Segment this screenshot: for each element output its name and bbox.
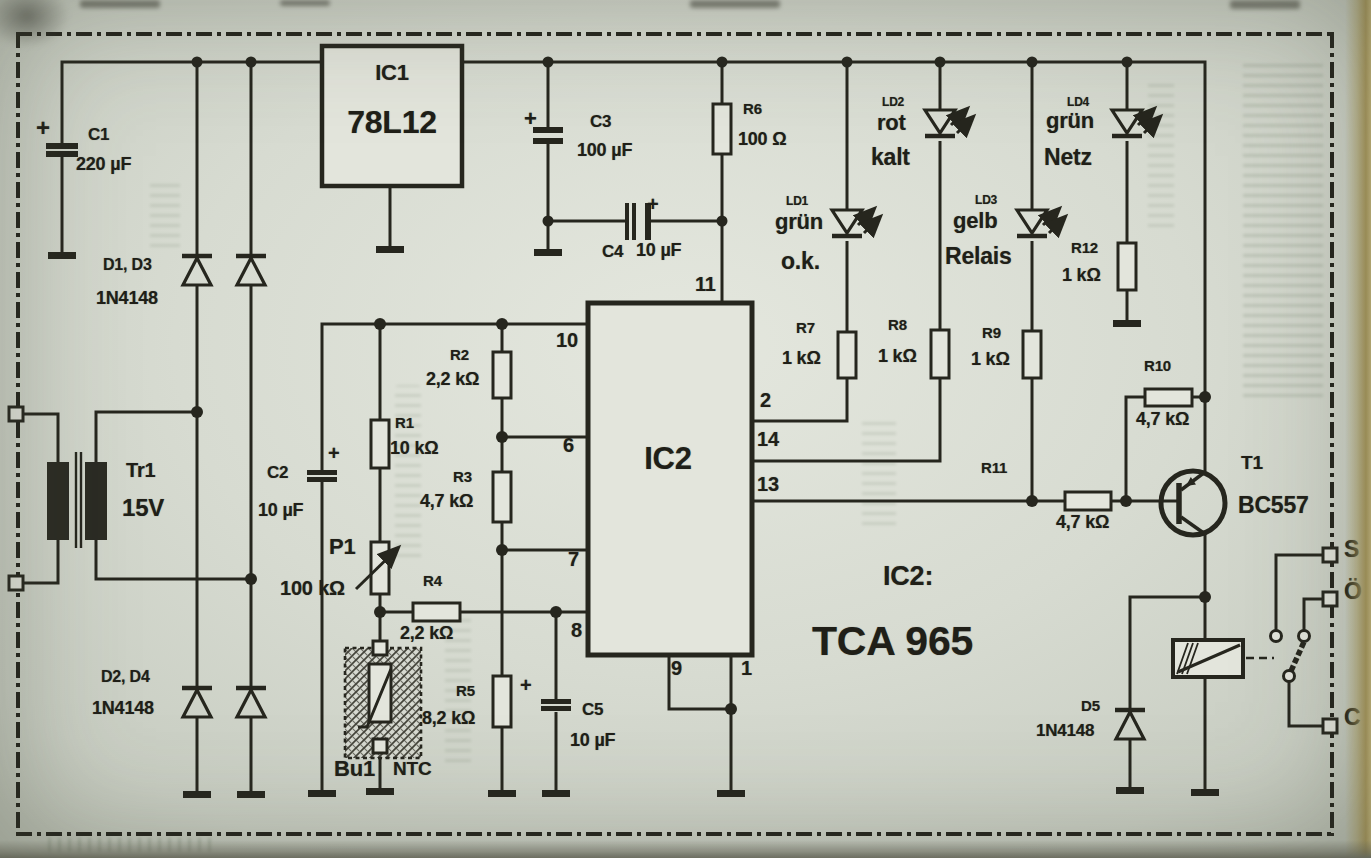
label-d1d3-value: 1N4148 — [96, 289, 158, 307]
label-r6-value: 100 Ω — [738, 130, 786, 148]
label-c4-plus: + — [647, 194, 658, 214]
label-r7-ref: R7 — [796, 320, 815, 335]
label-tr1-ref: Tr1 — [126, 460, 155, 480]
label-ld3-ref: LD3 — [975, 194, 997, 206]
label-c4-ref: C4 — [602, 243, 623, 260]
label-c1-value: 220 µF — [76, 155, 131, 173]
scanned-schematic-photo: +C1220 µFD1, D31N4148IC178L12+C3100 µF+C… — [0, 0, 1371, 858]
label-r4-ref: R4 — [423, 573, 442, 588]
label-r8-value: 1 kΩ — [878, 347, 917, 365]
label-pin-6: 6 — [563, 435, 574, 455]
label-pin-10: 10 — [556, 330, 578, 350]
label-r12-ref: R12 — [1071, 240, 1098, 255]
label-ic1-value: 78L12 — [347, 106, 437, 138]
label-r10-value: 4,7 kΩ — [1136, 410, 1189, 428]
label-ic2-note-label: IC2: — [883, 563, 933, 590]
label-ld2-color: rot — [877, 112, 906, 134]
label-d2d4-value: 1N4148 — [92, 699, 154, 717]
label-r4-value: 2,2 kΩ — [400, 624, 453, 642]
label-c5-plus: + — [520, 675, 531, 695]
label-p1-ref: P1 — [329, 536, 356, 558]
label-terminal-s: S — [1344, 538, 1359, 561]
label-ld2-ref: LD2 — [882, 96, 904, 108]
label-bu1-type: NTC — [393, 759, 431, 778]
label-ld4-ref: LD4 — [1067, 96, 1089, 108]
label-c4-value: 10 µF — [636, 241, 681, 259]
label-r8-ref: R8 — [888, 317, 907, 332]
label-c3-value: 100 µF — [577, 141, 632, 159]
label-pin-2: 2 — [760, 390, 771, 410]
label-d1d3-ref: D1, D3 — [103, 257, 152, 273]
label-c2-plus: + — [328, 443, 339, 463]
label-c5-value: 10 µF — [570, 731, 615, 749]
label-pin-11: 11 — [695, 274, 716, 294]
schematic-labels: +C1220 µFD1, D31N4148IC178L12+C3100 µF+C… — [0, 0, 1371, 858]
label-t1-ref: T1 — [1241, 453, 1263, 472]
label-r10-ref: R10 — [1144, 358, 1171, 373]
label-c5-ref: C5 — [582, 701, 603, 718]
label-pin-8: 8 — [571, 620, 582, 640]
label-r12-value: 1 kΩ — [1062, 266, 1101, 284]
label-d2d4-ref: D2, D4 — [101, 669, 150, 685]
label-pin-14: 14 — [757, 429, 779, 449]
label-d5-ref: D5 — [1081, 698, 1100, 713]
label-r11-ref: R11 — [981, 460, 1007, 475]
label-c1-ref: C1 — [88, 126, 109, 143]
label-c2-ref: C2 — [267, 464, 288, 481]
label-terminal-oe: Ö — [1344, 580, 1362, 603]
label-r9-value: 1 kΩ — [971, 350, 1010, 368]
label-ld3-function: Relais — [945, 245, 1012, 268]
label-r1-ref: R1 — [395, 415, 414, 430]
label-pin-1: 1 — [741, 658, 752, 678]
label-c1-plus: + — [36, 116, 50, 140]
label-c3-ref: C3 — [590, 113, 611, 130]
label-ic2-ref: IC2 — [644, 443, 692, 474]
label-r2-ref: R2 — [450, 347, 469, 362]
label-p1-value: 100 kΩ — [280, 578, 345, 598]
label-pin-13: 13 — [757, 474, 779, 494]
label-r6-ref: R6 — [743, 101, 762, 116]
label-pin-7: 7 — [568, 549, 579, 569]
label-r5-value: 8,2 kΩ — [422, 709, 475, 727]
label-tr1-value: 15V — [122, 496, 164, 520]
label-ld4-function: Netz — [1044, 146, 1092, 169]
label-r1-value: 10 kΩ — [390, 439, 438, 457]
label-d5-value: 1N4148 — [1036, 722, 1094, 739]
label-ld3-color: gelb — [953, 210, 997, 232]
label-pin-9: 9 — [671, 658, 682, 678]
label-ld1-ref: LD1 — [786, 195, 808, 207]
label-bu1-ref: Bu1 — [334, 758, 375, 780]
label-r5-ref: R5 — [456, 683, 475, 698]
label-r7-value: 1 kΩ — [782, 349, 821, 367]
label-t1-value: BC557 — [1238, 494, 1309, 517]
label-terminal-c: C — [1344, 706, 1360, 729]
label-r9-ref: R9 — [982, 325, 1001, 340]
label-r3-ref: R3 — [453, 469, 472, 484]
label-ic1-ref: IC1 — [375, 62, 409, 84]
label-c2-value: 10 µF — [258, 501, 303, 519]
label-c3-plus: + — [524, 108, 537, 130]
label-r2-value: 2,2 kΩ — [426, 370, 479, 388]
label-ic2-note-value: TCA 965 — [812, 621, 973, 662]
label-r3-value: 4,7 kΩ — [420, 492, 473, 510]
label-ld2-function: kalt — [871, 146, 910, 169]
label-ld1-function: o.k. — [781, 250, 820, 273]
label-r11-value: 4,7 kΩ — [1056, 513, 1109, 531]
label-ld4-color: grün — [1046, 110, 1094, 132]
label-ld1-color: grün — [775, 211, 823, 233]
